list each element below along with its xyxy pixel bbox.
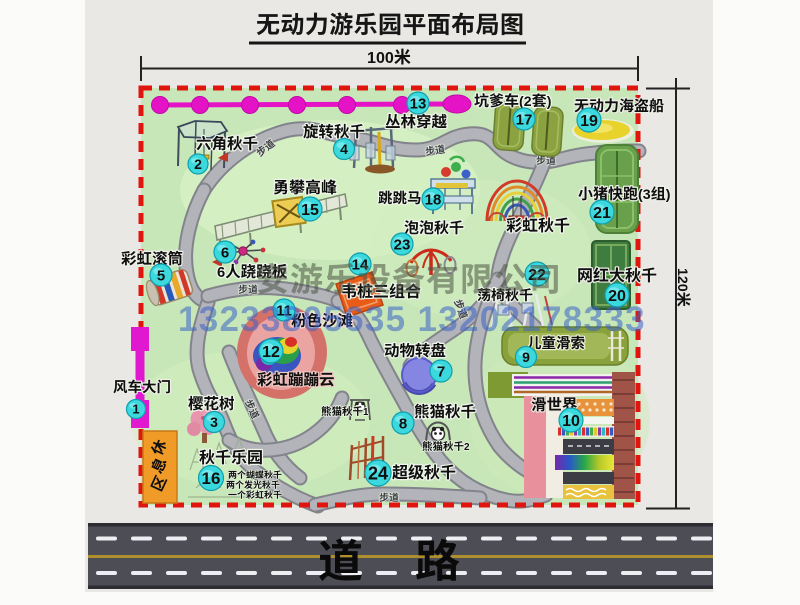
svg-text:15: 15 xyxy=(301,202,319,219)
svg-text:1: 1 xyxy=(132,402,139,417)
svg-text:17: 17 xyxy=(516,111,533,128)
svg-text:100: 100 xyxy=(367,49,394,67)
svg-text:3: 3 xyxy=(210,414,218,430)
svg-text:5: 5 xyxy=(157,267,165,284)
svg-text:16: 16 xyxy=(202,469,221,488)
svg-text:10: 10 xyxy=(562,413,580,430)
svg-text:18: 18 xyxy=(425,191,442,208)
svg-text:2: 2 xyxy=(194,156,202,172)
svg-text:): ) xyxy=(666,187,671,203)
svg-text:120: 120 xyxy=(674,268,690,292)
svg-text:9: 9 xyxy=(522,349,530,365)
svg-text:1: 1 xyxy=(363,407,369,418)
svg-text:13: 13 xyxy=(410,95,427,112)
svg-text:22: 22 xyxy=(528,267,546,284)
svg-text:13233805635 13202178333: 13233805635 13202178333 xyxy=(178,300,646,339)
svg-text:21: 21 xyxy=(593,205,611,222)
svg-text:6: 6 xyxy=(217,265,225,281)
svg-text:12: 12 xyxy=(262,344,280,361)
svg-text:(3: (3 xyxy=(638,187,651,203)
svg-text:19: 19 xyxy=(580,113,598,130)
svg-text:4: 4 xyxy=(340,141,348,157)
svg-text:24: 24 xyxy=(368,463,388,483)
svg-text:): ) xyxy=(547,94,552,110)
svg-text:2: 2 xyxy=(464,442,470,453)
svg-text:8: 8 xyxy=(399,415,407,432)
svg-text:23: 23 xyxy=(394,236,411,253)
svg-text:7: 7 xyxy=(437,363,445,380)
svg-text:6: 6 xyxy=(221,244,229,261)
